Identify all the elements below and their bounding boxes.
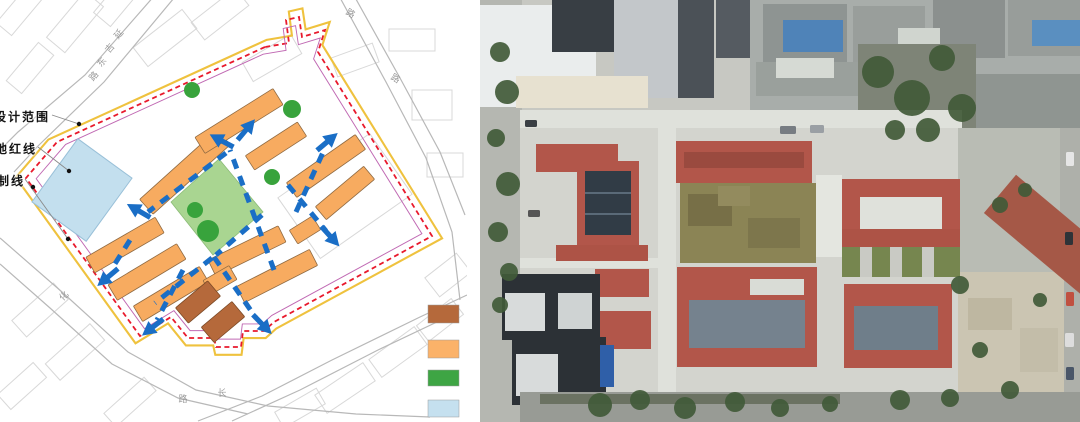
legend-brown-swatch [428,305,459,323]
photo-tree [885,120,905,140]
photo-tree [948,94,976,122]
photo-block [1020,328,1058,372]
figure: 延吉东路路路化路长 设计范围 地红线 制线 [0,0,1080,422]
photo-block [718,186,750,206]
photo-block [558,293,592,329]
photo-block [816,175,842,257]
photo-tree [500,263,518,281]
photo-tree [890,390,910,410]
tree [197,220,219,242]
legend-orange-swatch [428,340,459,358]
photo-car [780,126,796,134]
photo-block [556,245,648,261]
site-plan-svg: 延吉东路路路化路长 [0,0,467,422]
photo-car [1066,292,1074,306]
photo-block [968,298,1012,330]
photo-block [776,58,834,78]
photo-tree [492,297,508,313]
aerial-photo-svg [480,0,1080,422]
photo-tree [941,389,959,407]
photo-block [516,76,648,108]
photo-tree [725,392,745,412]
photo-block [678,0,714,98]
photo-block [585,213,631,215]
photo-tree [951,276,969,294]
photo-block [585,171,631,235]
photo-tree [588,393,612,417]
photo-car [1066,152,1074,166]
photo-block [854,306,938,350]
photo-block [890,247,902,277]
photo-block [689,300,805,348]
photo-block [842,229,960,247]
photo-block [585,192,631,194]
photo-block [716,0,750,58]
photo-tree [487,129,505,147]
annotation-control-line: 制线 [0,172,25,189]
photo-block [600,345,614,387]
photo-tree [972,342,988,358]
photo-car [525,120,537,127]
photo-block [552,0,616,52]
photo-tree [674,397,696,419]
annotation-dot [77,122,81,126]
photo-tree [916,118,940,142]
photo-tree [894,80,930,116]
photo-tree [822,396,838,412]
photo-car [1065,333,1074,347]
road-name-char: 长 [217,387,226,399]
annotation-dot [67,169,71,173]
photo-tree [495,80,519,104]
photo-block [1032,20,1080,46]
photo-block [783,20,843,52]
photo-block [684,152,804,168]
annotation-design-scope: 设计范围 [0,108,50,125]
aerial-photo-panel [480,0,1080,422]
annotation-dot [31,185,35,189]
photo-car [1066,367,1074,380]
annotation-site-red-line: 地红线 [0,140,37,157]
tree [184,82,200,98]
photo-tree [1033,293,1047,307]
photo-car [528,210,540,217]
tree [264,169,280,185]
photo-block [748,218,800,248]
photo-tree [490,42,510,62]
site-plan-panel: 延吉东路路路化路长 设计范围 地红线 制线 [0,0,467,422]
photo-tree [771,399,789,417]
photo-block [505,293,545,331]
photo-block [750,279,804,295]
photo-tree [862,56,894,88]
photo-tree [992,197,1008,213]
tree [187,202,203,218]
photo-car [810,125,824,133]
annotation-dot [66,237,70,241]
photo-tree [630,390,650,410]
photo-tree [1018,183,1032,197]
photo-tree [488,222,508,242]
legend-light-blue-swatch [428,400,459,417]
photo-block [966,74,1080,128]
road-name-char: 路 [178,393,187,405]
photo-block [860,247,872,277]
photo-tree [929,45,955,71]
photo-block [922,247,934,277]
legend-green-swatch [428,370,459,386]
tree [283,100,301,118]
photo-block [516,354,558,396]
photo-car [1065,232,1073,245]
photo-block [595,269,649,297]
photo-tree [496,172,520,196]
photo-tree [1001,381,1019,399]
